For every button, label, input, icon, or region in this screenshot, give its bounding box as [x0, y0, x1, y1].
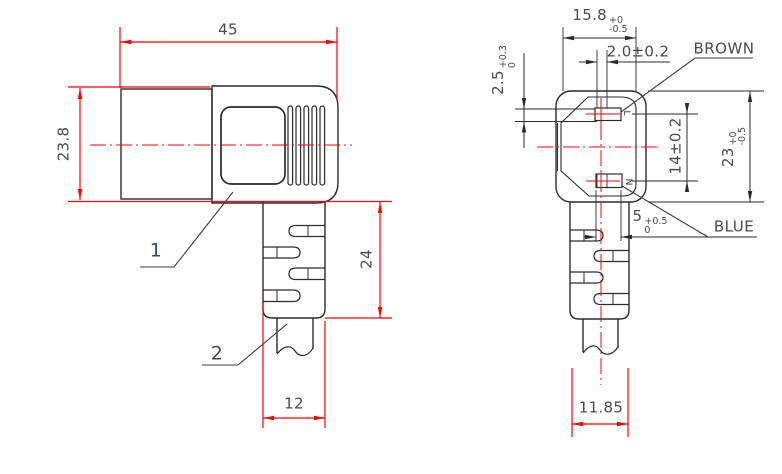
- strain-relief-slot: [263, 290, 300, 302]
- mating-end-outline: [121, 89, 212, 199]
- strain-relief-slot: [289, 226, 325, 237]
- arrowhead: [617, 422, 628, 426]
- strain-relief-slot: [570, 272, 603, 283]
- dim-face-height-label: 23+0-0.5: [721, 127, 747, 167]
- arrowhead: [522, 98, 526, 109]
- grip-rib: [320, 106, 325, 185]
- dim-cable-width-label: 12: [284, 397, 304, 412]
- arrowhead: [685, 181, 689, 192]
- arrowhead: [314, 416, 325, 420]
- dim-pin-offset-label: 5+0.50: [633, 209, 668, 235]
- arrowhead: [563, 36, 574, 40]
- dimension-arrowheads-red: [78, 40, 628, 426]
- strain-relief-slot: [289, 268, 325, 280]
- arrowhead: [263, 416, 274, 420]
- live-pin-mark: L: [621, 110, 631, 115]
- cable-break-line: [277, 347, 313, 356]
- arrowhead: [120, 40, 131, 44]
- arrowhead: [748, 191, 752, 202]
- arrowhead: [522, 122, 526, 133]
- drawing-canvas: [0, 0, 782, 474]
- arrowhead: [748, 91, 752, 102]
- arrowhead: [378, 307, 382, 318]
- strain-relief-outline: [263, 202, 325, 318]
- dim-strain-relief-length-label: 24: [360, 249, 375, 269]
- part-number-2-label: 2: [211, 345, 223, 364]
- neutral-pin-mark: N: [623, 179, 633, 186]
- brown-wire-label: BROWN: [693, 42, 754, 57]
- arrowhead: [625, 36, 636, 40]
- side-view-outline: [121, 86, 338, 356]
- grip-rib: [288, 106, 293, 185]
- arrowhead: [586, 60, 597, 64]
- dim-overall-width-label: 45: [218, 23, 238, 38]
- strain-relief-slot: [594, 294, 629, 305]
- dim-face-width-label: 15.8+0-0.5: [572, 8, 627, 34]
- technical-drawing-page: 45 23.8 24 12 1 2 15.8+0-0.5 2.0±0.2 2.5…: [0, 0, 782, 474]
- arrowhead: [78, 88, 82, 99]
- strain-relief-slot: [263, 247, 300, 258]
- arrowhead: [621, 235, 632, 239]
- dim-strain-relief-width-label: 11.85: [579, 401, 623, 416]
- arrowhead: [378, 202, 382, 213]
- dim-pin-pitch-label: 14±0.2: [669, 117, 684, 174]
- blue-wire-label: BLUE: [714, 220, 754, 235]
- arrowhead: [78, 189, 82, 200]
- dim-pin-slot-width-label: 2.0±0.2: [607, 45, 669, 60]
- arrowhead: [326, 40, 337, 44]
- part-number-1-label: 1: [150, 242, 162, 261]
- dim-pin-slot-height-label: 2.5+0.30: [491, 45, 517, 95]
- pin-crosshair-marks: [586, 104, 620, 192]
- arrowhead: [585, 235, 596, 239]
- dim-body-height-label: 23.8: [57, 127, 72, 162]
- side-view-leader-lines: [140, 192, 287, 365]
- arrowhead: [685, 103, 689, 114]
- strain-relief-slot: [594, 251, 629, 262]
- arrowhead: [572, 422, 583, 426]
- strain-relief-outline: [570, 202, 629, 319]
